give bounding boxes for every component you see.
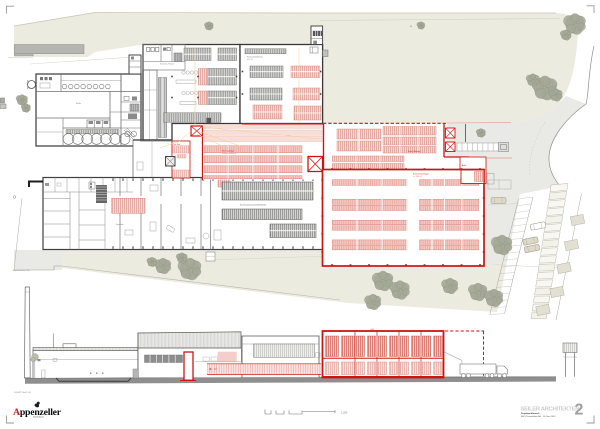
svg-text:SEILER ARCHITEKTEN: SEILER ARCHITEKTEN <box>521 407 580 413</box>
svg-text:2: 2 <box>575 402 584 419</box>
svg-text:Kommissionierung Tiefkühllande: Kommissionierung Tiefkühllande <box>240 205 266 207</box>
svg-text:86: 86 <box>410 26 412 28</box>
svg-text:Kommiss./Verlad: Kommiss./Verlad <box>160 64 173 66</box>
svg-text:ca. 2634 m2: ca. 2634 m2 <box>413 176 422 178</box>
svg-text:Kommissionierung: Kommissionierung <box>222 152 236 155</box>
svg-text:Steuer./Montage: Steuer./Montage <box>408 150 420 153</box>
svg-text:EBCO-Immobilien AG · 26. Nov 2: EBCO-Immobilien AG · 26. Nov 2010 <box>521 415 556 418</box>
svg-text:SCHNITT A-A 1:200: SCHNITT A-A 1:200 <box>14 391 31 394</box>
svg-text:Keller: Keller <box>76 103 81 105</box>
svg-text:Projektwettbewerb: Projektwettbewerb <box>521 412 540 415</box>
svg-text:Spedition: Spedition <box>116 223 124 226</box>
svg-text:Switzerland: Switzerland <box>33 415 43 418</box>
svg-text:+20.5: +20.5 <box>370 329 374 331</box>
svg-text:Ampenzstrasse 72m: Ampenzstrasse 72m <box>13 269 30 272</box>
svg-text:Kommissionierlager: Kommissionierlager <box>413 174 429 176</box>
svg-text:1:200: 1:200 <box>341 412 348 415</box>
svg-text:612 m2: 612 m2 <box>247 59 253 61</box>
